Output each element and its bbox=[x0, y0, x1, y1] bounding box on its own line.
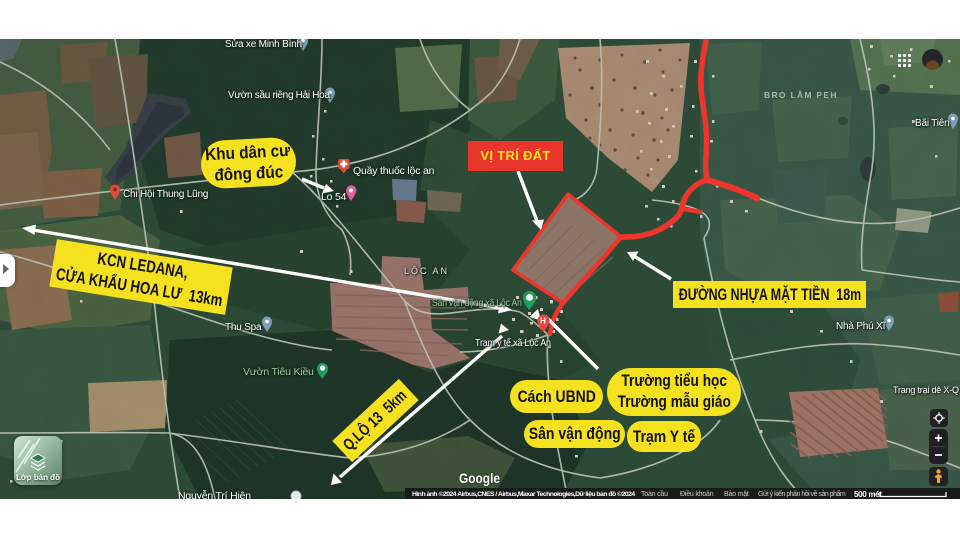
svg-text:H: H bbox=[540, 317, 546, 326]
